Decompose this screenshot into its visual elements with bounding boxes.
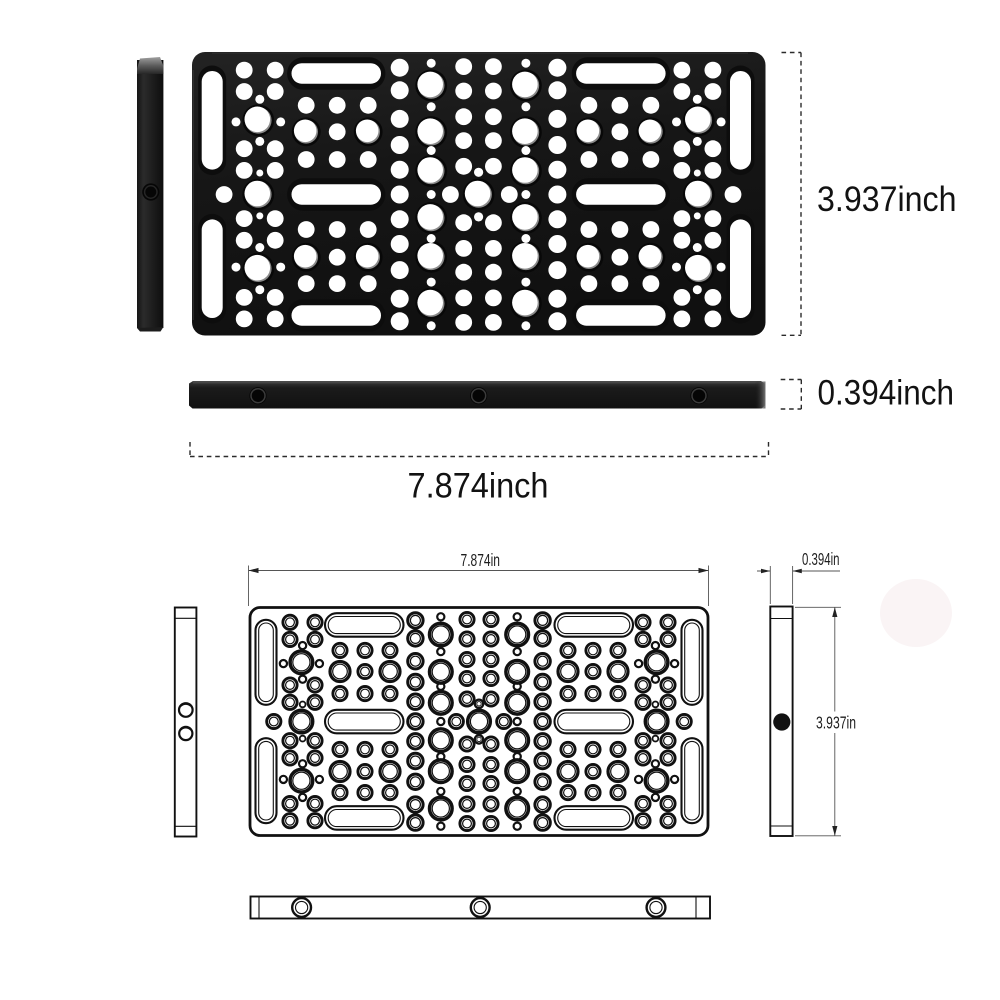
svg-text:3.937inch: 3.937inch xyxy=(817,180,957,219)
svg-text:0.394inch: 0.394inch xyxy=(818,374,955,413)
svg-text:3.937in: 3.937in xyxy=(816,713,856,733)
svg-text:7.874inch: 7.874inch xyxy=(408,467,549,506)
svg-text:0.394in: 0.394in xyxy=(802,549,840,569)
svg-text:7.874in: 7.874in xyxy=(461,550,501,570)
